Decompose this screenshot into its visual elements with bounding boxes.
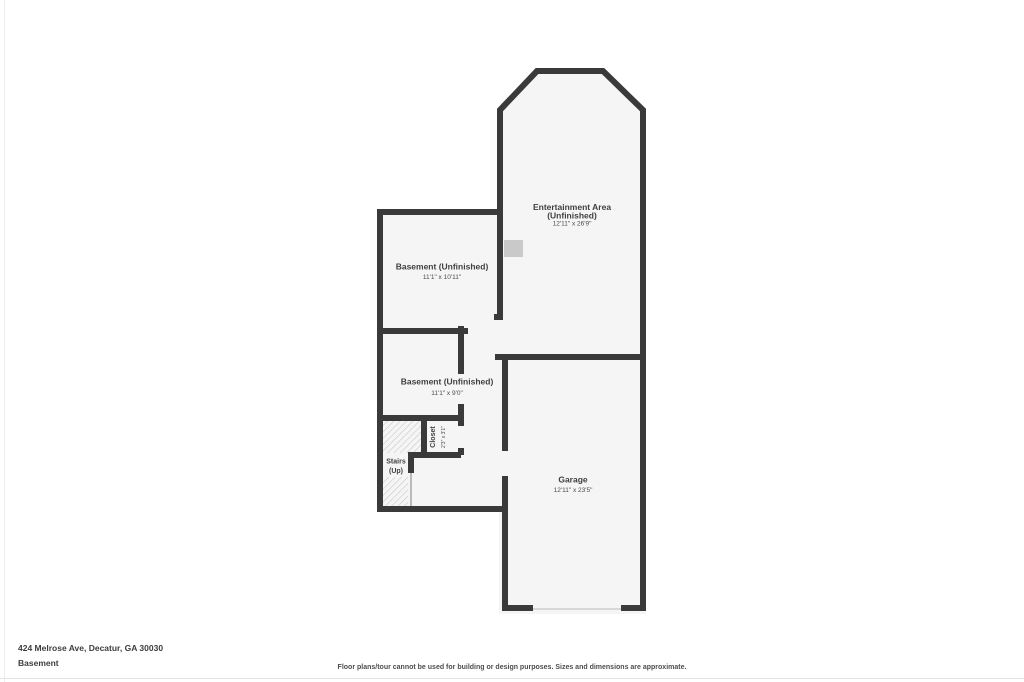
basement1-dims: 11'1" x 10'11" xyxy=(423,274,462,281)
entertainment-sub: (Unfinished) xyxy=(547,211,597,221)
garage-dims: 12'11" x 23'5" xyxy=(554,487,593,494)
room-fills xyxy=(377,70,646,614)
basement1-name: Basement (Unfinished) xyxy=(396,262,489,272)
floorplan-drawing: Entertainment Area (Unfinished) 12'11" x… xyxy=(0,0,1024,682)
basement2-name: Basement (Unfinished) xyxy=(401,377,494,387)
page-edge-bottom xyxy=(0,678,1024,679)
closet-name: Closet xyxy=(430,426,437,448)
basement2-dims: 11'1" x 9'0" xyxy=(431,390,463,397)
stairs-sub: (Up) xyxy=(389,468,403,475)
garage-name: Garage xyxy=(558,475,588,485)
entertainment-dims: 12'11" x 26'9" xyxy=(553,221,592,228)
page-edge-left xyxy=(4,0,5,682)
floorplan-page: Entertainment Area (Unfinished) 12'11" x… xyxy=(0,0,1024,682)
disclaimer-text: Floor plans/tour cannot be used for buil… xyxy=(0,664,1024,671)
property-address: 424 Melrose Ave, Decatur, GA 30030 xyxy=(18,643,163,653)
fireplace-feature xyxy=(504,240,523,257)
stairs-name: Stairs xyxy=(386,459,406,466)
closet-dims: 2'3" x 3'1" xyxy=(441,426,447,448)
